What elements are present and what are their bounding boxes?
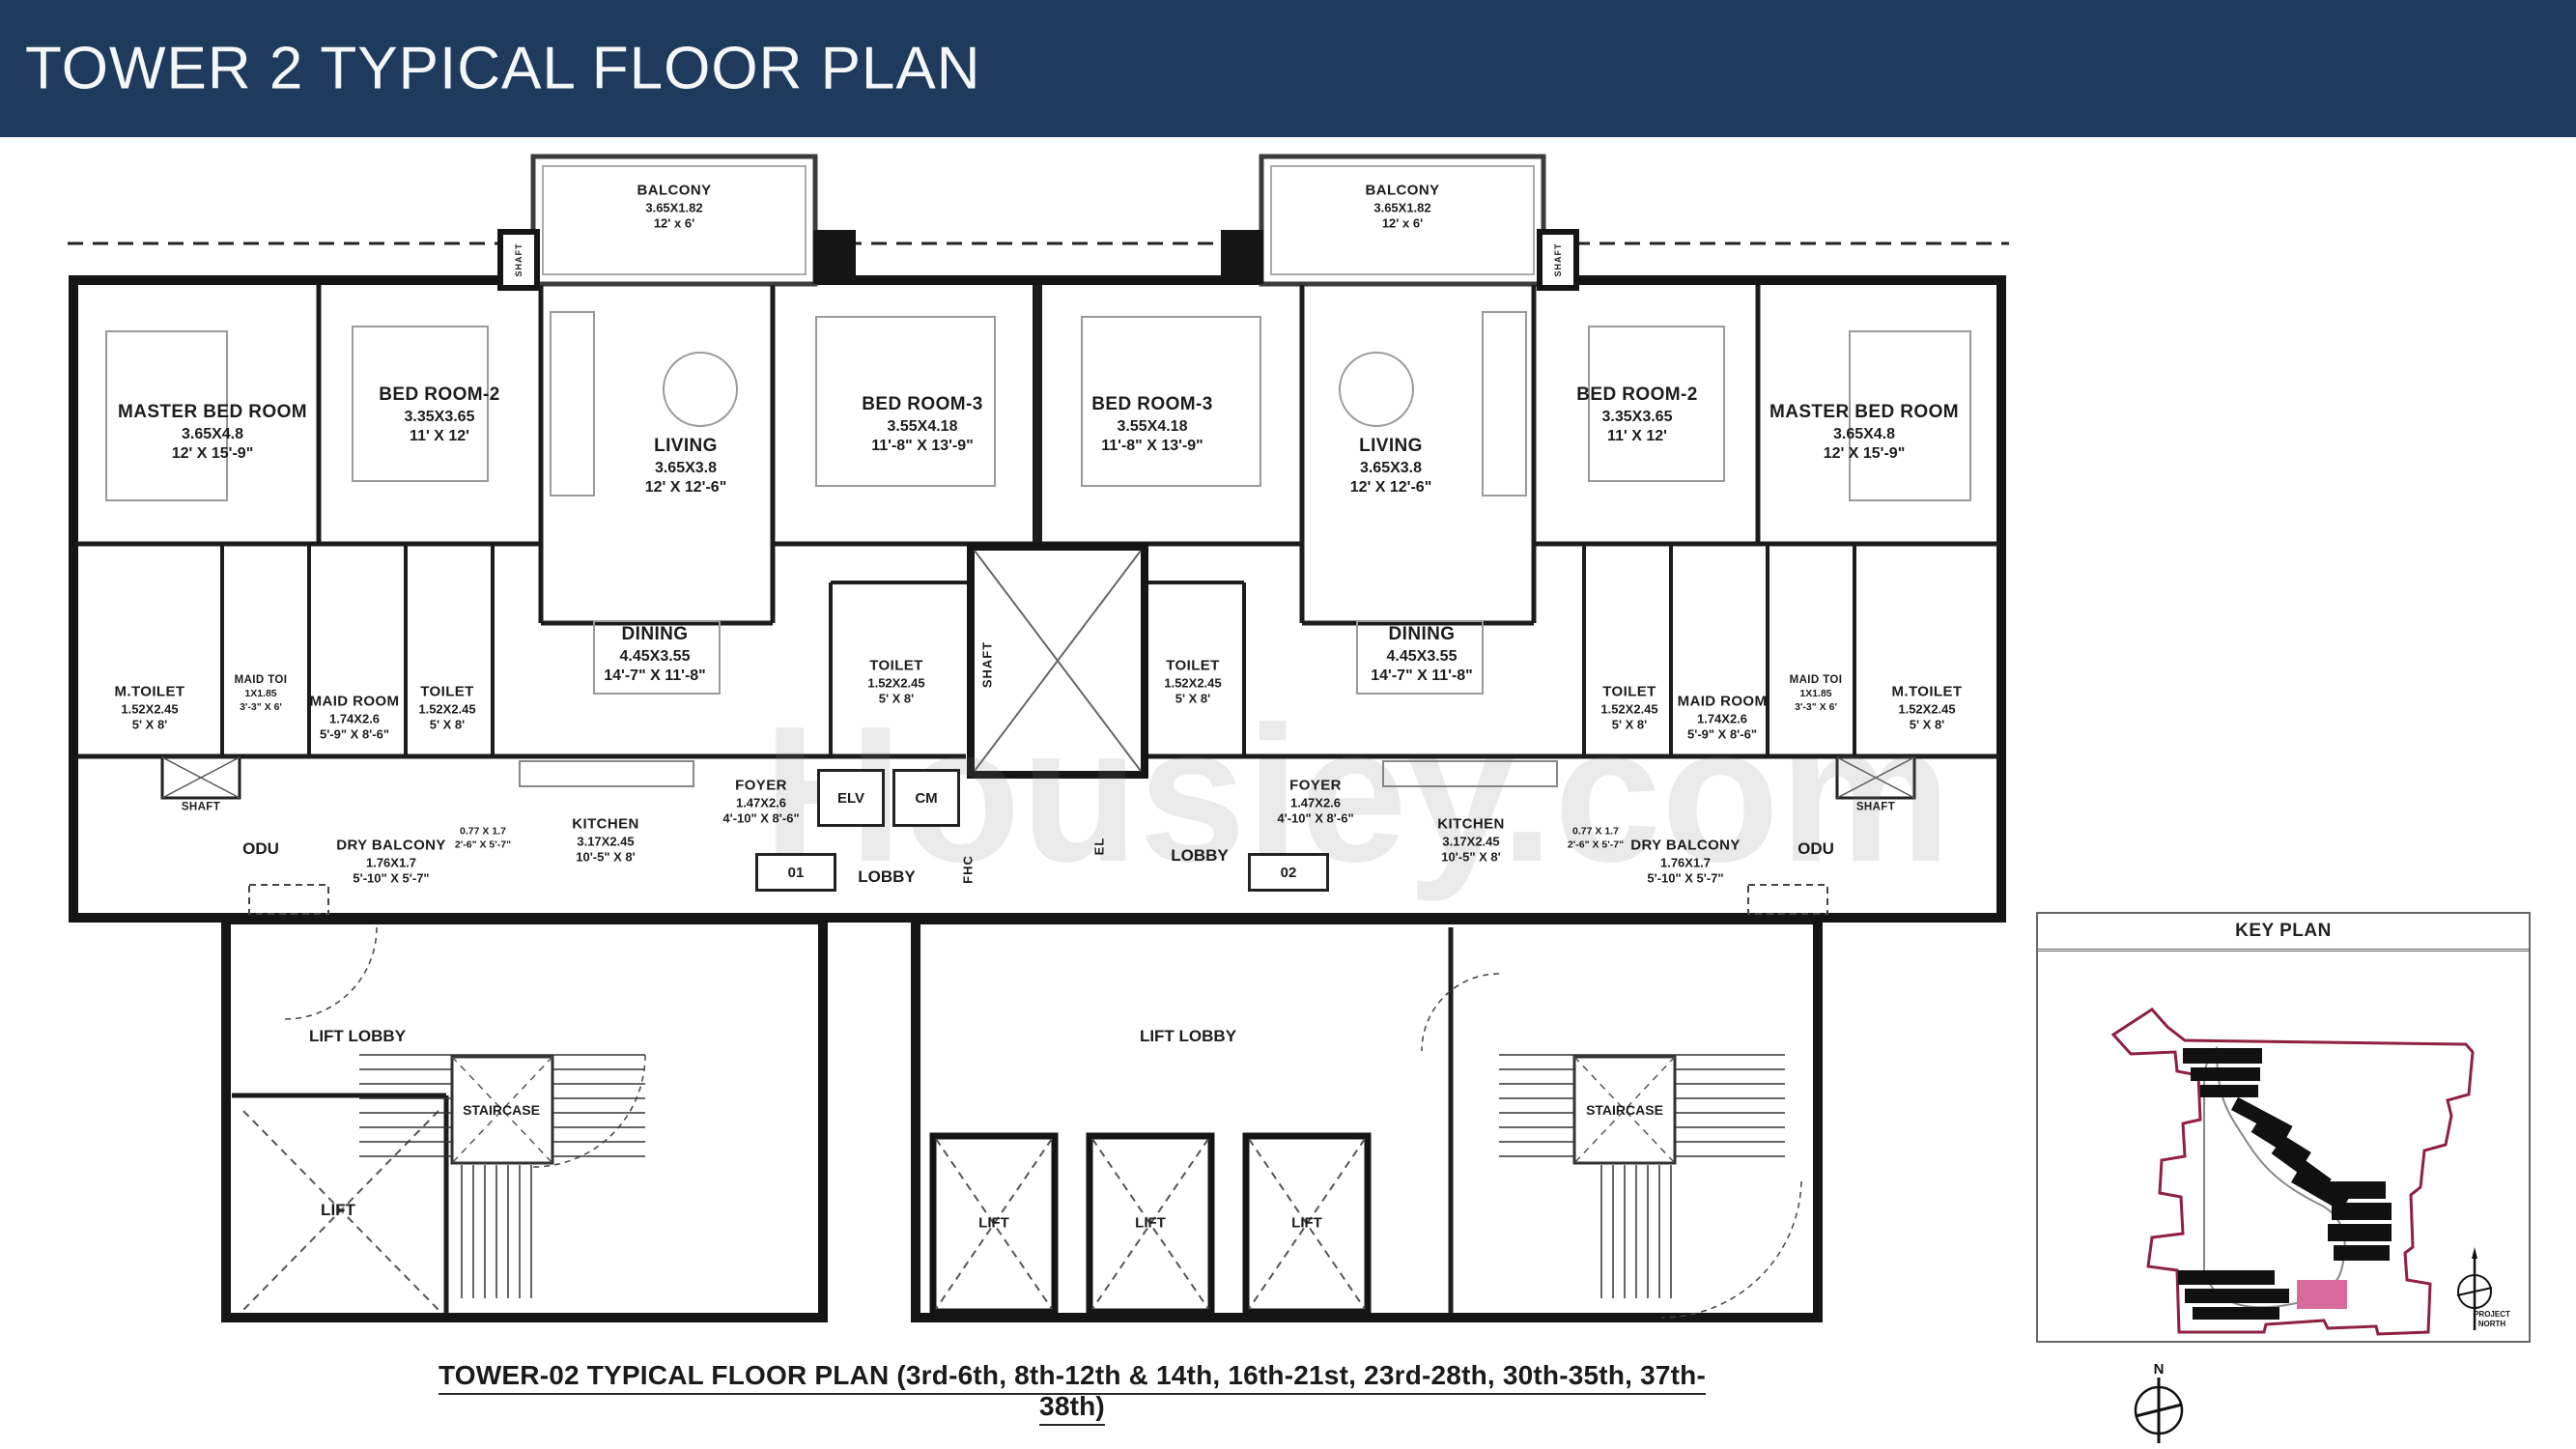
- room-label-bedroom3-right: BED ROOM-33.55X4.1811'-8" X 13'-9": [1091, 393, 1212, 457]
- room-label-maid-room-left: MAID ROOM1.74X2.65'-9" X 8'-6": [310, 692, 400, 743]
- room-label-odu-left: ODU: [242, 838, 279, 860]
- room-label-toilet-center-left: TOILET1.52X2.455' X 8': [867, 656, 924, 707]
- room-label-balcony-right: BALCONY3.65X1.8212' x 6': [1366, 181, 1440, 232]
- room-label-dry-balcony-right: DRY BALCONY1.76X1.75'-10" X 5'-7": [1630, 836, 1741, 887]
- room-label-master-right: MASTER BED ROOM3.65X4.812' X 15'-9": [1769, 401, 1959, 465]
- room-label-lift-2: LIFT: [1135, 1213, 1166, 1233]
- elevator-elv-box: ELV: [817, 769, 885, 827]
- passage-dims-left: 0.77 X 1.72'-6" X 5'-7": [455, 825, 511, 851]
- unit-02-box: 02: [1248, 853, 1329, 892]
- fhc-label: FHC: [961, 855, 976, 884]
- site-boundary: [2113, 1009, 2473, 1334]
- room-label-bedroom3-left: BED ROOM-33.55X4.1811'-8" X 13'-9": [862, 393, 982, 457]
- room-label-toilet-center-right: TOILET1.52X2.455' X 8': [1164, 656, 1221, 707]
- room-label-lobby-left: LOBBY: [858, 867, 916, 888]
- room-label-foyer-right: FOYER1.47X2.64'-10" X 8'-6": [1277, 776, 1353, 827]
- room-label-foyer-left: FOYER1.47X2.64'-10" X 8'-6": [722, 776, 799, 827]
- room-label-staircase-left: STAIRCASE: [463, 1101, 540, 1119]
- room-label-m-toilet-right: M.TOILET1.52X2.455' X 8': [1892, 682, 1963, 733]
- room-label-maid-room-right: MAID ROOM1.74X2.65'-9" X 8'-6": [1678, 692, 1768, 743]
- room-label-m-toilet-left: M.TOILET1.52X2.455' X 8': [115, 682, 185, 733]
- site-highlight-tower: [2297, 1280, 2347, 1309]
- shaft-label-balcony-right: SHAFT: [1553, 243, 1563, 277]
- key-plan-map: PROJECT NORTH: [2038, 952, 2529, 1341]
- room-label-dining-right: DINING4.45X3.5514'-7" X 11'-8": [1371, 623, 1473, 687]
- room-label-living-right: LIVING3.65X3.812' X 12'-6": [1350, 435, 1432, 498]
- page-title: TOWER 2 TYPICAL FLOOR PLAN: [25, 35, 981, 103]
- room-label-dining-left: DINING4.45X3.5514'-7" X 11'-8": [604, 623, 706, 687]
- room-label-master-left: MASTER BED ROOM3.65X4.812' X 15'-9": [118, 401, 307, 465]
- room-label-toilet-right: TOILET1.52X2.455' X 8': [1600, 682, 1657, 733]
- room-label-lift-left: LIFT: [321, 1200, 355, 1221]
- room-label-odu-right: ODU: [1798, 838, 1834, 860]
- room-label-bedroom2-left: BED ROOM-23.35X3.6511' X 12': [379, 384, 499, 447]
- room-label-maid-toilet-right: MAID TOI1X1.853'-3" X 6': [1790, 673, 1843, 714]
- room-label-maid-toilet-left: MAID TOI1X1.853'-3" X 6': [235, 673, 288, 714]
- room-label-dry-balcony-left: DRY BALCONY1.76X1.75'-10" X 5'-7": [336, 836, 446, 887]
- elevator-cm-box: CM: [892, 769, 960, 827]
- floor-plan-drawing: Housiey.com BALCONY3.65X1.8212' x 6' BAL…: [68, 143, 2009, 1350]
- drawing-caption: TOWER-02 TYPICAL FLOOR PLAN (3rd-6th, 8t…: [415, 1360, 1729, 1422]
- room-label-living-left: LIVING3.65X3.812' X 12'-6": [645, 435, 727, 498]
- room-label-balcony-left: BALCONY3.65X1.8212' x 6': [637, 181, 712, 232]
- room-label-kitchen-left: KITCHEN3.17X2.4510'-5" X 8': [572, 814, 638, 866]
- plan-linework: [68, 143, 2009, 1350]
- title-bar: TOWER 2 TYPICAL FLOOR PLAN: [0, 0, 2576, 137]
- shaft-label-small-right: SHAFT: [1856, 801, 1895, 815]
- shaft-label-balcony-left: SHAFT: [514, 243, 524, 277]
- shaft-label-small-left: SHAFT: [182, 801, 220, 815]
- room-label-lift-3: LIFT: [1291, 1213, 1322, 1233]
- key-plan-panel: KEY PLAN PROJECT NORTH: [2036, 912, 2531, 1343]
- room-label-lobby-right: LOBBY: [1171, 845, 1229, 867]
- unit-01-box: 01: [755, 853, 836, 892]
- passage-dims-right: 0.77 X 1.72'-6" X 5'-7": [1568, 825, 1624, 851]
- svg-text:N: N: [2154, 1361, 2165, 1378]
- room-label-kitchen-right: KITCHEN3.17X2.4510'-5" X 8': [1437, 814, 1504, 866]
- north-compass: N: [2110, 1358, 2207, 1447]
- svg-text:PROJECT: PROJECT: [2474, 1310, 2510, 1319]
- room-label-staircase-right: STAIRCASE: [1586, 1101, 1663, 1119]
- room-label-bedroom2-right: BED ROOM-23.35X3.6511' X 12': [1576, 384, 1697, 447]
- room-label-lift-1: LIFT: [978, 1213, 1009, 1233]
- el-shaft-label: EL: [1092, 838, 1107, 856]
- room-label-lift-lobby-left: LIFT LOBBY: [309, 1026, 406, 1047]
- key-plan-title: KEY PLAN: [2038, 914, 2529, 952]
- shaft-label-center: SHAFT: [980, 641, 995, 688]
- svg-text:NORTH: NORTH: [2478, 1320, 2506, 1328]
- room-label-lift-lobby-center: LIFT LOBBY: [1140, 1026, 1236, 1047]
- room-label-toilet-left: TOILET1.52X2.455' X 8': [418, 682, 475, 733]
